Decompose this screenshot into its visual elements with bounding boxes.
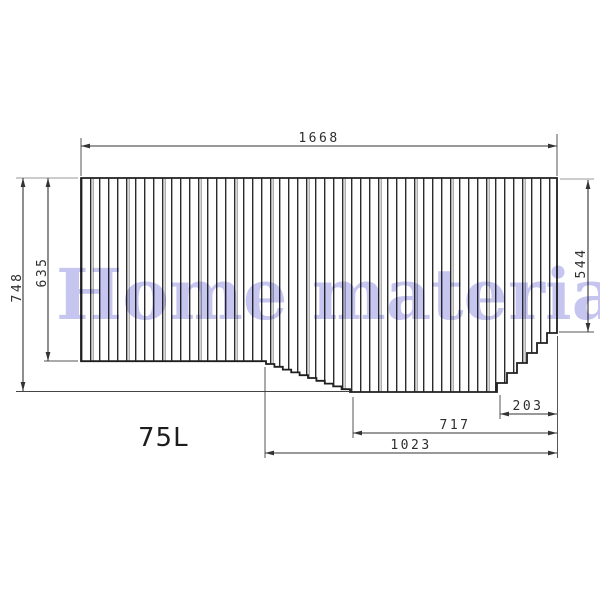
dim-label-overall-height: 748 <box>10 272 25 303</box>
dim-label-bottom-left: 1023 <box>390 438 431 453</box>
dim-label-bottom-right: 203 <box>513 399 544 414</box>
lid-slats-texture <box>75 172 565 400</box>
dim-label-top-width: 1668 <box>298 131 339 146</box>
diagram-canvas: 1668 748 635 544 203 717 1023 <box>0 0 600 600</box>
product-size-label: 75L <box>138 423 189 453</box>
dim-label-right-height: 544 <box>574 248 589 279</box>
bath-lid-dimension-diagram: 1668 748 635 544 203 717 1023 Home mater… <box>0 0 600 600</box>
dim-label-left-height: 635 <box>35 257 50 288</box>
dim-label-bottom-middle: 717 <box>440 418 471 433</box>
lid-body <box>75 172 565 400</box>
